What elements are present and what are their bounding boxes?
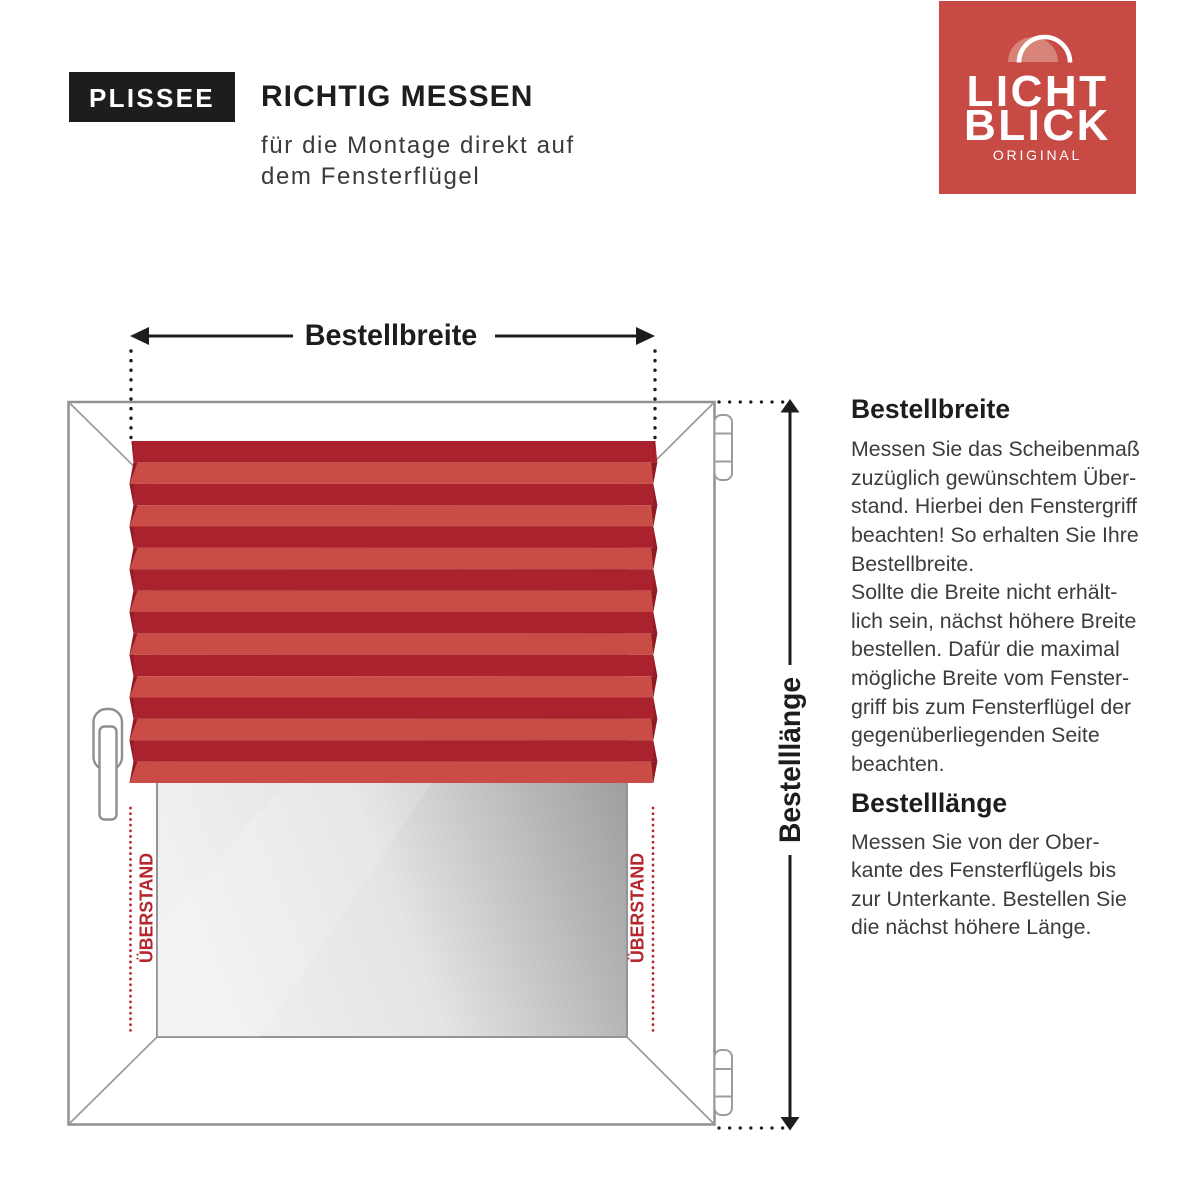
svg-text:ÜBERSTAND: ÜBERSTAND — [628, 853, 648, 963]
svg-text:ÜBERSTAND: ÜBERSTAND — [137, 853, 157, 963]
svg-text:Bestelllänge: Bestelllänge — [774, 677, 807, 843]
svg-text:Bestellbreite: Bestellbreite — [305, 319, 478, 352]
